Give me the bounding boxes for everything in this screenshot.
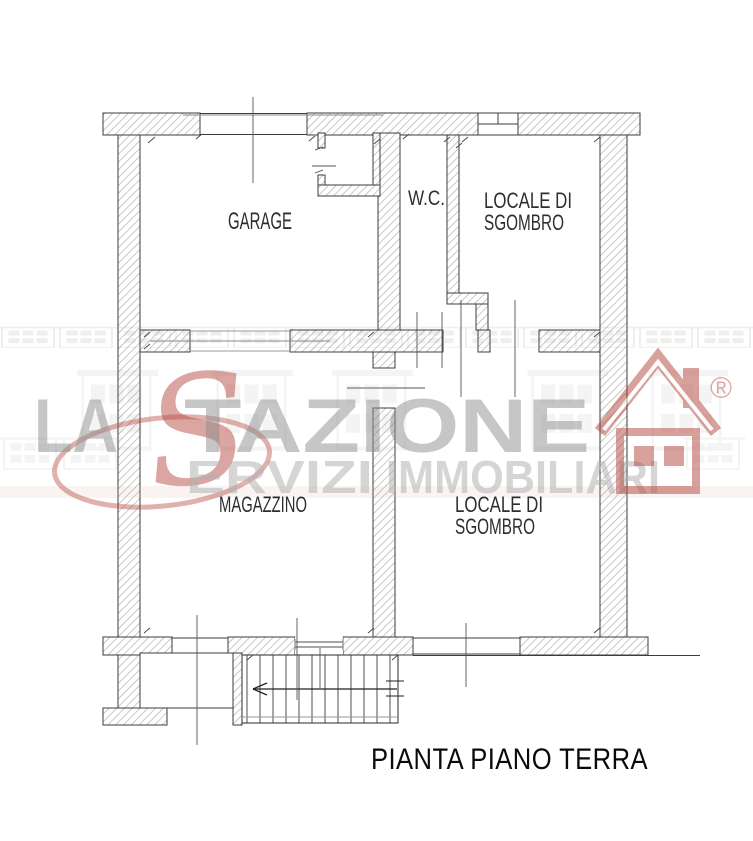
porch-outline	[140, 653, 233, 708]
room-label-locale-top-line2: SGOMBRO	[484, 210, 564, 235]
room-label-garage: GARAGE	[228, 208, 292, 235]
plan-title: PIANTA PIANO TERRA	[371, 743, 648, 776]
staircase	[242, 655, 404, 723]
room-label-locale-bottom-line2: SGOMBRO	[455, 514, 535, 539]
floorplan-page: LA S TAZIONE ERVIZI IMMOBILIARI ® GARAGE…	[0, 0, 753, 841]
brand-prefix: LA	[34, 384, 118, 469]
window-symbol-bottom	[295, 637, 343, 655]
window-symbol-top	[478, 113, 518, 135]
room-label-magazzino: MAGAZZINO	[219, 492, 307, 517]
registered-mark: ®	[710, 372, 732, 405]
room-label-wc: W.C.	[408, 187, 445, 210]
